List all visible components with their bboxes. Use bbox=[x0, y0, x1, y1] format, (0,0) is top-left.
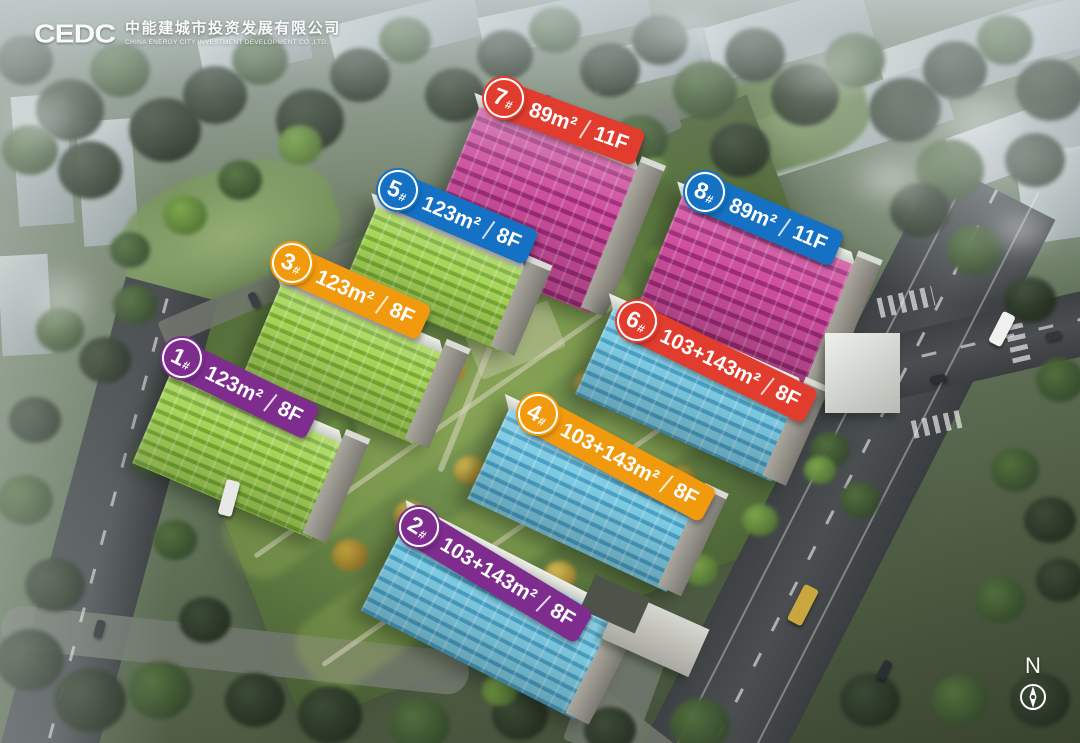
floor-count-label: 8F bbox=[274, 396, 307, 428]
cloud-haze bbox=[905, 95, 1055, 145]
floor-count-label: 8F bbox=[669, 478, 702, 511]
car bbox=[1044, 330, 1061, 341]
floor-count-label: 8F bbox=[771, 380, 804, 412]
divider bbox=[535, 595, 551, 612]
north-compass: N bbox=[1016, 655, 1050, 719]
floor-count-label: 8F bbox=[493, 223, 525, 255]
floor-count-label: 11F bbox=[591, 121, 632, 156]
cloud-haze bbox=[10, 270, 110, 330]
clubhouse-building bbox=[825, 333, 900, 413]
aerial-site-render: 89m² 11F 7 # 123m² 8F 5 # 89m² 11F 8 # bbox=[0, 0, 1080, 743]
north-label: N bbox=[1016, 655, 1050, 677]
company-name-cn: 中能建城市投资发展有限公司 bbox=[125, 20, 341, 37]
compass-icon bbox=[1016, 680, 1050, 714]
floor-count-label: 8F bbox=[386, 298, 418, 330]
car bbox=[876, 659, 893, 681]
company-logo: CEDC 中能建城市投资发展有限公司 CHINA ENERGY CITY INV… bbox=[34, 20, 341, 50]
company-name-en: CHINA ENERGY CITY INVESTMENT DEVELOPMENT… bbox=[125, 39, 341, 46]
floor-count-label: 11F bbox=[789, 220, 831, 256]
bus bbox=[787, 584, 819, 627]
cloud-haze bbox=[830, 160, 950, 200]
car bbox=[929, 373, 946, 384]
divider bbox=[659, 475, 674, 492]
car bbox=[247, 291, 261, 309]
truck bbox=[988, 311, 1016, 348]
divider bbox=[375, 295, 389, 313]
logo-mark: CEDC bbox=[34, 22, 115, 48]
cloud-haze bbox=[630, 10, 750, 50]
cloud-haze bbox=[970, 212, 1070, 248]
divider bbox=[481, 221, 495, 239]
floor-count-label: 8F bbox=[546, 598, 579, 631]
car bbox=[93, 619, 106, 639]
cloud-haze bbox=[760, 48, 900, 93]
divider bbox=[778, 218, 792, 236]
divider bbox=[579, 120, 592, 139]
divider bbox=[760, 377, 775, 395]
divider bbox=[263, 394, 278, 412]
